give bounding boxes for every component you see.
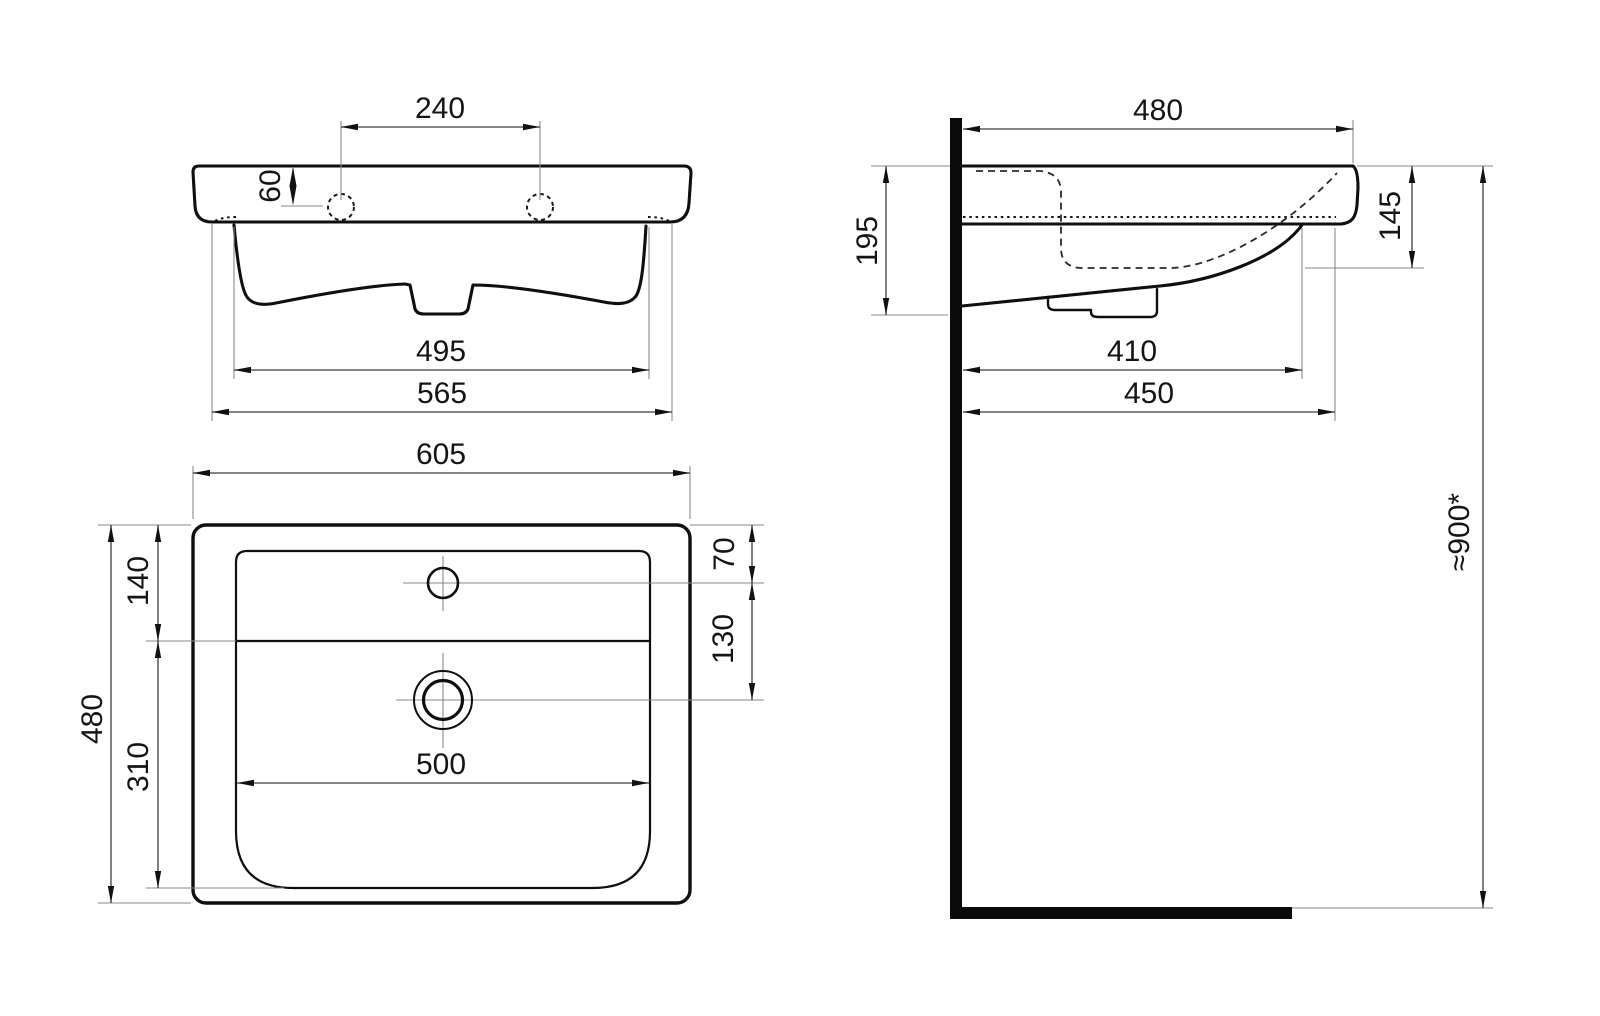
floor-line [950,907,1292,919]
plan-dim-500: 500 [237,748,649,783]
front-dim-240: 240 [341,92,540,200]
front-dim-240-label: 240 [415,92,465,125]
front-dim-495-label: 495 [416,335,466,368]
side-dim-450-label: 450 [1124,377,1174,410]
side-front-edge [1341,166,1358,224]
side-dim-480: 480 [963,94,1353,163]
plan-dim-130-label: 130 [707,614,740,664]
plan-dim-310-label: 310 [122,742,155,792]
side-dim-450: 450 [963,228,1335,421]
plan-dim-605: 605 [193,438,690,519]
side-dim-900-label: ≈900* [1443,493,1476,572]
plan-dim-140-310: 140 310 [122,525,284,888]
drawing-canvas: 240 60 495 565 [0,0,1600,1016]
front-view: 240 60 495 565 [193,92,691,421]
plan-dim-500-label: 500 [416,748,466,781]
front-dim-60: 60 [254,167,323,206]
side-view: 480 195 145 410 450 ≈900* [851,94,1493,919]
plan-view: 605 480 140 310 70 130 [76,438,764,903]
side-dim-195-label: 195 [851,216,884,266]
front-dim-495: 495 [234,227,649,379]
front-dim-565: 565 [212,224,672,421]
side-dim-480-label: 480 [1133,94,1183,127]
plan-dim-70-130: 70 130 [690,525,764,700]
side-dim-410: 410 [963,228,1302,379]
front-bowl-underside [234,225,646,314]
plan-outer-outline [193,525,690,903]
drawing-sheet: 240 60 495 565 [0,0,1600,1016]
side-dim-145-label: 145 [1374,191,1407,241]
front-dim-60-label: 60 [254,169,287,202]
side-hidden-basin-contour [976,171,1337,268]
plan-dim-140-label: 140 [122,556,155,606]
plan-dim-605-label: 605 [416,438,466,471]
side-dim-410-label: 410 [1107,335,1157,368]
plan-dim-70-label: 70 [708,537,741,570]
front-dim-565-label: 565 [417,377,467,410]
plan-dim-480-label: 480 [76,694,109,744]
side-dim-195: 195 [851,166,948,315]
side-underside [962,225,1302,306]
side-dim-900: ≈900* [1443,166,1483,908]
plan-drain [396,653,764,748]
wall-line [950,118,962,919]
